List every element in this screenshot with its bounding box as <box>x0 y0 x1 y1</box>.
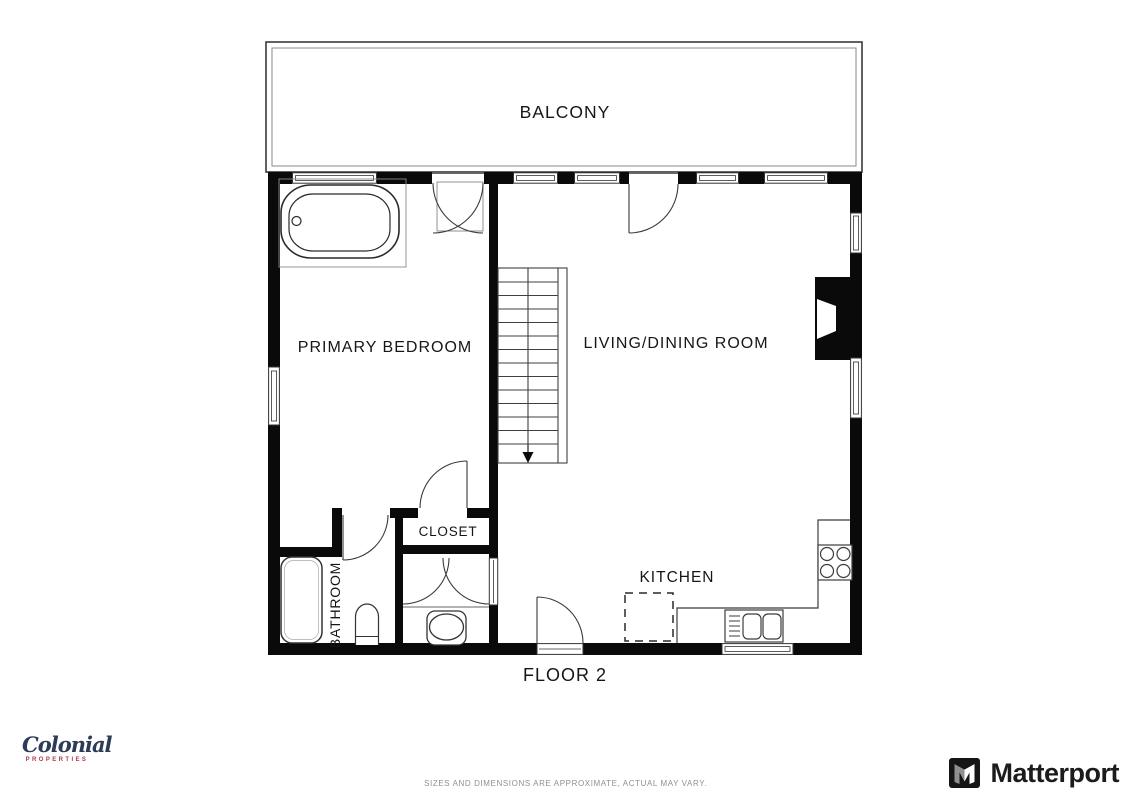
toilet-room-doors <box>403 558 489 604</box>
closet-label: CLOSET <box>419 524 478 539</box>
floor-label: FLOOR 2 <box>523 665 607 685</box>
closet-door <box>420 461 467 508</box>
bathroom-door <box>343 515 388 560</box>
staircase <box>498 268 567 463</box>
primary-bedroom-label: PRIMARY BEDROOM <box>298 339 472 356</box>
matterport-wordmark: Matterport <box>991 758 1120 789</box>
fireplace <box>815 277 862 360</box>
tub-faucet-icon <box>292 217 301 226</box>
matterport-m-icon <box>948 756 981 790</box>
pedestal-sink <box>356 604 379 645</box>
shower-tub <box>281 557 322 643</box>
kitchen-island-dashed <box>625 593 673 641</box>
colonial-subtitle-text: PROPERTIES <box>22 757 92 763</box>
living-balcony-door <box>629 184 678 233</box>
floorplan-drawing: BALCONY PRIMARY BEDROOM LIVING/DINING RO… <box>0 0 1131 800</box>
living-dining-label: LIVING/DINING ROOM <box>583 335 768 352</box>
kitchen-label: KITCHEN <box>639 569 714 586</box>
stove-cooktop <box>818 545 852 580</box>
balcony-label: BALCONY <box>520 102 611 122</box>
bedroom-balcony-doors <box>433 182 483 233</box>
toilet-room-fixtures <box>403 607 489 645</box>
bathroom-label: BATHROOM <box>327 562 343 648</box>
toilet <box>427 611 466 645</box>
matterport-logo: Matterport <box>948 755 1120 791</box>
colonial-script-text: Colonial <box>22 734 92 755</box>
colonial-properties-logo: Colonial PROPERTIES <box>22 734 92 763</box>
floorplan-page: BALCONY PRIMARY BEDROOM LIVING/DINING RO… <box>0 0 1131 800</box>
bathtub <box>279 179 406 267</box>
kitchen-sink <box>725 610 783 642</box>
kitchen-door <box>537 597 583 643</box>
